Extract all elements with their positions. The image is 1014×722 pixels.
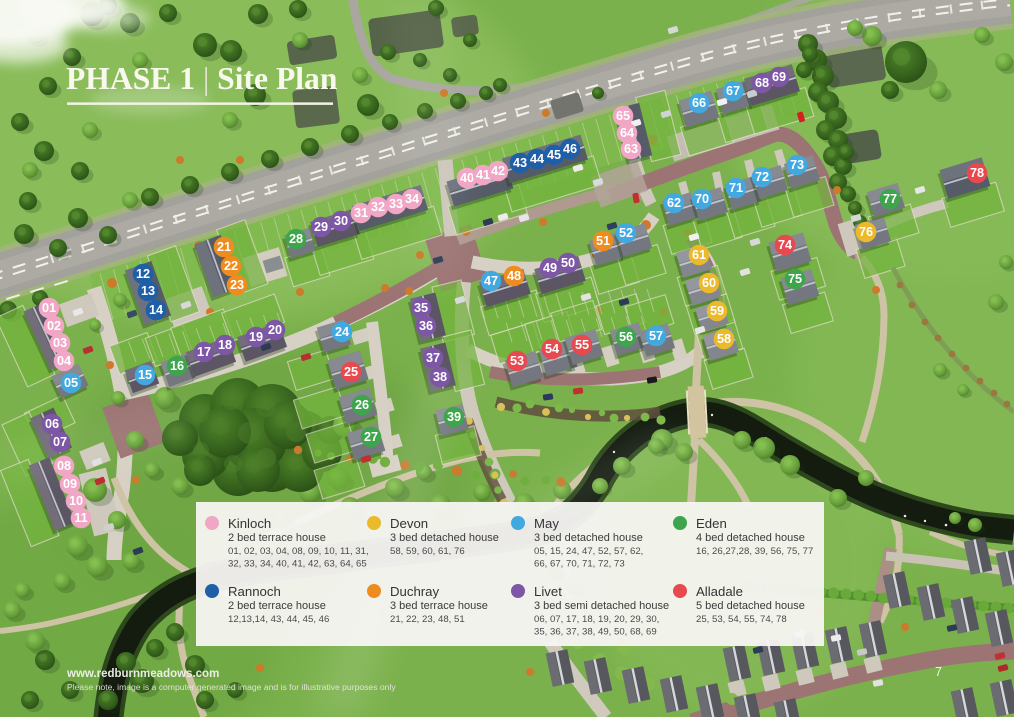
svg-text:33: 33: [389, 197, 403, 211]
svg-text:Livet: Livet: [534, 584, 562, 599]
svg-text:27: 27: [364, 430, 378, 444]
svg-text:54: 54: [545, 342, 559, 356]
svg-text:75: 75: [788, 272, 802, 286]
svg-text:15: 15: [138, 368, 152, 382]
svg-text:3 bed detached house: 3 bed detached house: [390, 532, 499, 544]
svg-text:28: 28: [289, 232, 303, 246]
svg-text:38: 38: [433, 370, 447, 384]
svg-text:7: 7: [935, 665, 942, 679]
svg-text:36: 36: [419, 319, 433, 333]
svg-text:74: 74: [778, 238, 792, 252]
svg-text:22: 22: [224, 259, 238, 273]
svg-text:Alladale: Alladale: [696, 584, 743, 599]
svg-text:39: 39: [447, 410, 461, 424]
svg-text:42: 42: [491, 164, 505, 178]
svg-text:11: 11: [74, 511, 87, 525]
svg-text:69: 69: [772, 70, 786, 84]
svg-text:48: 48: [507, 269, 521, 283]
svg-text:14: 14: [149, 303, 163, 317]
svg-text:45: 45: [547, 148, 561, 162]
svg-text:77: 77: [883, 192, 897, 206]
svg-text:02: 02: [47, 319, 61, 333]
svg-text:05: 05: [64, 376, 78, 390]
svg-text:26: 26: [355, 398, 369, 412]
svg-text:34: 34: [405, 192, 419, 206]
svg-text:56: 56: [619, 330, 633, 344]
svg-text:66: 66: [692, 96, 706, 110]
svg-text:Kinloch: Kinloch: [228, 516, 271, 531]
svg-text:04: 04: [57, 354, 71, 368]
svg-text:06: 06: [45, 417, 59, 431]
svg-text:20: 20: [268, 323, 282, 337]
svg-text:64: 64: [620, 126, 634, 140]
svg-text:2 bed terrace house: 2 bed terrace house: [228, 532, 326, 544]
svg-text:52: 52: [619, 226, 633, 240]
svg-text:06, 07, 17, 18, 19, 20, 29, 30: 06, 07, 17, 18, 19, 20, 29, 30,: [534, 614, 659, 625]
svg-text:Please note, image is a comput: Please note, image is a computer generat…: [67, 682, 396, 692]
svg-text:18: 18: [218, 338, 232, 352]
svg-text:46: 46: [563, 142, 577, 156]
svg-text:50: 50: [561, 256, 575, 270]
svg-text:40: 40: [460, 171, 474, 185]
svg-text:30: 30: [334, 214, 348, 228]
svg-text:72: 72: [755, 170, 769, 184]
svg-text:www.redburnmeadows.com: www.redburnmeadows.com: [66, 668, 219, 680]
svg-text:58: 58: [717, 332, 731, 346]
svg-text:01, 02, 03, 04, 08, 09, 10, 11: 01, 02, 03, 04, 08, 09, 10, 11, 31,: [228, 546, 369, 557]
svg-text:21: 21: [217, 240, 231, 254]
svg-text:63: 63: [624, 142, 638, 156]
svg-text:05, 15, 24, 47, 52, 57, 62,: 05, 15, 24, 47, 52, 57, 62,: [534, 546, 643, 557]
svg-text:35, 36, 37, 38, 49, 50, 68, 69: 35, 36, 37, 38, 49, 50, 68, 69: [534, 626, 657, 637]
svg-text:68: 68: [755, 76, 769, 90]
svg-text:2 bed terrace house: 2 bed terrace house: [228, 600, 326, 612]
svg-text:78: 78: [970, 166, 984, 180]
svg-text:58, 59, 60, 61, 76: 58, 59, 60, 61, 76: [390, 546, 465, 557]
svg-text:67: 67: [726, 84, 740, 98]
svg-text:07: 07: [53, 435, 67, 449]
svg-text:13: 13: [141, 284, 155, 298]
svg-text:51: 51: [596, 234, 610, 248]
svg-text:62: 62: [667, 196, 681, 210]
svg-text:16: 16: [170, 359, 184, 373]
svg-text:Duchray: Duchray: [390, 584, 440, 599]
svg-text:3 bed terrace house: 3 bed terrace house: [390, 600, 488, 612]
svg-text:Devon: Devon: [390, 516, 428, 531]
svg-text:12: 12: [136, 267, 150, 281]
svg-text:70: 70: [695, 192, 709, 206]
svg-text:12,13,14, 43, 44, 45, 46: 12,13,14, 43, 44, 45, 46: [228, 614, 329, 625]
svg-text:35: 35: [414, 301, 428, 315]
svg-text:76: 76: [859, 225, 873, 239]
svg-text:47: 47: [484, 274, 498, 288]
svg-text:49: 49: [543, 261, 557, 275]
svg-text:60: 60: [702, 276, 716, 290]
svg-text:25, 53, 54, 55, 74, 78: 25, 53, 54, 55, 74, 78: [696, 614, 787, 625]
svg-text:32: 32: [371, 200, 385, 214]
svg-text:PHASE 1 | Site Plan: PHASE 1 | Site Plan: [66, 61, 338, 96]
svg-text:21, 22, 23, 48, 51: 21, 22, 23, 48, 51: [390, 614, 465, 625]
svg-text:65: 65: [616, 109, 630, 123]
svg-text:09: 09: [63, 477, 77, 491]
svg-text:24: 24: [335, 325, 349, 339]
svg-text:23: 23: [230, 278, 244, 292]
svg-text:53: 53: [510, 354, 524, 368]
svg-text:44: 44: [530, 152, 544, 166]
svg-text:03: 03: [53, 336, 67, 350]
svg-text:Eden: Eden: [696, 516, 727, 531]
svg-text:5 bed detached house: 5 bed detached house: [696, 600, 805, 612]
svg-text:08: 08: [57, 459, 71, 473]
svg-text:59: 59: [710, 304, 724, 318]
svg-text:32, 33, 34, 40, 41, 42, 63, 64: 32, 33, 34, 40, 41, 42, 63, 64, 65: [228, 558, 367, 569]
svg-text:61: 61: [692, 248, 706, 262]
svg-text:66, 67, 70, 71, 72, 73: 66, 67, 70, 71, 72, 73: [534, 558, 625, 569]
svg-text:May: May: [534, 516, 559, 531]
svg-text:25: 25: [344, 365, 358, 379]
svg-text:55: 55: [575, 338, 589, 352]
svg-text:17: 17: [197, 345, 211, 359]
svg-text:31: 31: [354, 206, 368, 220]
svg-text:10: 10: [69, 494, 83, 508]
svg-text:43: 43: [513, 156, 527, 170]
svg-text:01: 01: [42, 301, 56, 315]
svg-text:19: 19: [249, 330, 263, 344]
svg-text:29: 29: [314, 220, 328, 234]
svg-text:71: 71: [729, 181, 743, 195]
svg-text:3 bed detached house: 3 bed detached house: [534, 532, 643, 544]
svg-text:37: 37: [426, 351, 440, 365]
svg-text:4 bed detached house: 4 bed detached house: [696, 532, 805, 544]
svg-text:16, 26,27,28, 39, 56, 75, 77: 16, 26,27,28, 39, 56, 75, 77: [696, 546, 813, 557]
svg-text:Rannoch: Rannoch: [228, 584, 281, 599]
svg-text:73: 73: [790, 158, 804, 172]
svg-text:57: 57: [649, 329, 663, 343]
svg-text:3 bed semi detached house: 3 bed semi detached house: [534, 600, 669, 612]
